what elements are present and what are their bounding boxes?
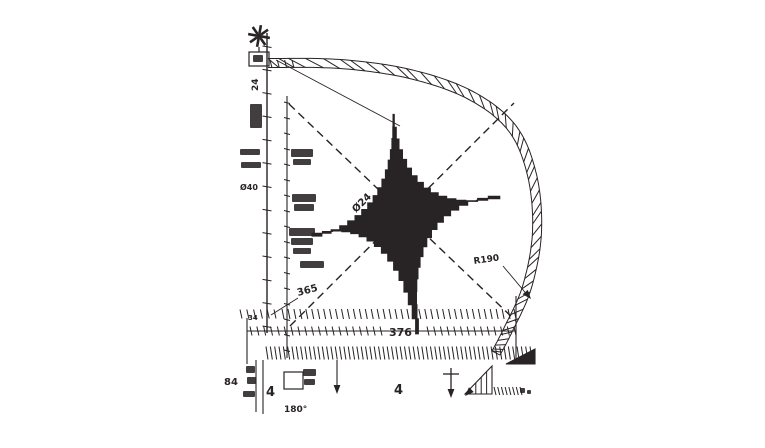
micro-text-blob-2 bbox=[292, 194, 316, 202]
tick-band-c-tick bbox=[469, 347, 471, 360]
tick-band-c-tick bbox=[400, 347, 402, 360]
tick-band-a-tick bbox=[425, 309, 427, 319]
datum-flower-icon bbox=[260, 38, 265, 45]
micro-text-blob-15 bbox=[303, 369, 316, 376]
tick-band-top-tick bbox=[285, 60, 287, 68]
tick-band-a-stub-tick bbox=[274, 310, 276, 319]
datum-flower-icon bbox=[248, 34, 256, 35]
tick-band-a-tick bbox=[496, 309, 498, 319]
hatch-triangle bbox=[465, 366, 492, 394]
annotation-dim-84: 84 bbox=[224, 377, 238, 388]
micro-text-blob-1 bbox=[293, 159, 311, 165]
centerline-ne bbox=[290, 103, 514, 326]
tick-band-c-tick bbox=[331, 347, 333, 360]
annotation-dim-180deg: 180° bbox=[284, 405, 307, 415]
tick-band-c-tick bbox=[379, 347, 381, 360]
tick-band-c-tick bbox=[478, 347, 480, 360]
tick-band-c-tick bbox=[270, 347, 272, 360]
datum-flower-icon bbox=[259, 25, 260, 33]
annotation-dim-34: 34 bbox=[248, 314, 258, 322]
tick-band-a-tick bbox=[460, 309, 462, 319]
tick-band-a-stub-tick bbox=[240, 310, 242, 319]
tick-band-a-tick bbox=[389, 309, 391, 319]
tick-band-c-tick bbox=[279, 347, 281, 360]
tick-band-a-tick bbox=[484, 309, 486, 319]
tick-band-c-tick bbox=[314, 347, 316, 360]
tick-band-c-tick bbox=[283, 347, 285, 360]
arrow-337 bbox=[334, 385, 341, 394]
arc-tick bbox=[517, 131, 520, 145]
tick-band-c-tick bbox=[491, 347, 493, 360]
micro-text-blob-6 bbox=[293, 248, 311, 254]
tick-band-a-tick bbox=[312, 309, 314, 319]
tick-band-c-tick bbox=[366, 347, 368, 360]
micro-text-blob-16 bbox=[304, 379, 315, 385]
annotation-callout-4-mid: 4 bbox=[394, 383, 403, 398]
tick-band-c-tick bbox=[452, 347, 454, 360]
arc-tick bbox=[527, 159, 533, 172]
tick-band-a-tick bbox=[490, 309, 492, 319]
micro-text-blob-5 bbox=[291, 238, 313, 245]
annotation-callout-4-left: 4 bbox=[266, 385, 275, 400]
arc-tick bbox=[524, 148, 529, 161]
tick-band-a-tick bbox=[401, 309, 403, 319]
tick-band-c-tick bbox=[482, 347, 484, 360]
tick-band-micro-tick bbox=[505, 387, 507, 395]
tick-band-c-tick bbox=[322, 347, 324, 360]
tick-band-c-tick bbox=[448, 347, 450, 360]
tick-band-a-tick bbox=[472, 309, 474, 319]
tick-band-c-tick bbox=[474, 347, 476, 360]
arc-tick bbox=[532, 224, 541, 236]
tick-band-c-tick bbox=[465, 347, 467, 360]
mechanical-drawing: 24Ø4036534376Ø24R19084180°44 bbox=[0, 0, 765, 448]
arc-tick bbox=[532, 190, 540, 203]
tick-band-c-tick bbox=[357, 347, 359, 360]
tick-band-micro-tick bbox=[516, 387, 518, 395]
micro-text-blob-12 bbox=[246, 366, 255, 373]
top-leader-line bbox=[276, 60, 400, 126]
tick-band-c-tick bbox=[392, 347, 394, 360]
annotation-dim-376: 376 bbox=[389, 326, 412, 339]
tick-band-a-tick bbox=[365, 309, 367, 319]
tick-band-c-tick bbox=[348, 347, 350, 360]
arc-tick bbox=[520, 138, 524, 152]
tick-band-c-tick bbox=[340, 347, 342, 360]
tick-band-c-tick bbox=[404, 347, 406, 360]
arc-tick bbox=[268, 59, 279, 68]
arc-tick bbox=[528, 166, 534, 179]
tick-band-c-tick bbox=[296, 347, 298, 360]
micro-text-blob-3 bbox=[294, 204, 314, 211]
tick-band-micro-tick bbox=[501, 387, 503, 395]
tick-band-c-tick bbox=[409, 347, 411, 360]
tick-band-a-tick bbox=[502, 309, 504, 319]
tick-band-c-tick bbox=[374, 347, 376, 360]
arc-tick bbox=[505, 114, 506, 128]
tick-band-a-tick bbox=[466, 309, 468, 319]
tick-band-c-tick bbox=[426, 347, 428, 360]
tick-band-a-tick bbox=[282, 309, 284, 319]
tick-band-c-tick bbox=[383, 347, 385, 360]
tick-band-c-tick bbox=[439, 347, 441, 360]
annotation-dim-dia-40: Ø40 bbox=[240, 182, 258, 192]
tick-band-c-tick bbox=[487, 347, 489, 360]
tick-band-c-tick bbox=[396, 347, 398, 360]
tick-band-c-tick bbox=[413, 347, 415, 360]
drawing-stage: 24Ø4036534376Ø24R19084180°44 bbox=[0, 0, 765, 448]
tick-band-c-tick bbox=[443, 347, 445, 360]
datum-flower-icon bbox=[261, 36, 269, 37]
micro-text-blob-8 bbox=[240, 149, 260, 155]
tick-band-c-tick bbox=[309, 347, 311, 360]
tick-band-c-tick bbox=[305, 347, 307, 360]
annotation-dim-left-24: 24 bbox=[251, 78, 261, 91]
tick-band-a-tick bbox=[407, 309, 409, 319]
tick-band-micro-tick bbox=[513, 387, 515, 395]
tick-band-c-tick bbox=[301, 347, 303, 360]
datum-flower-icon-center bbox=[256, 33, 261, 38]
tick-band-c-tick bbox=[353, 347, 355, 360]
micro-text-blob-9 bbox=[241, 162, 261, 168]
arc-tick bbox=[324, 59, 340, 69]
arc-tick bbox=[498, 339, 509, 341]
arc-tick bbox=[306, 58, 324, 67]
tick-band-c-tick bbox=[344, 347, 346, 360]
annotation-dim-r190: R190 bbox=[473, 253, 500, 266]
tick-band-c-tick bbox=[513, 347, 515, 360]
tick-band-c-tick bbox=[504, 347, 506, 360]
arc-tick bbox=[493, 349, 503, 350]
arrow-hatch-tri bbox=[465, 387, 474, 396]
micro-text-blob-13 bbox=[247, 377, 256, 384]
tick-band-a-tick bbox=[330, 309, 332, 319]
tick-band-a-tick bbox=[478, 309, 480, 319]
tick-band-a-tick bbox=[336, 309, 338, 319]
tick-band-c-tick bbox=[318, 347, 320, 360]
annotation-dim-365: 365 bbox=[296, 283, 319, 299]
tick-band-a-tick bbox=[383, 309, 385, 319]
arc-tick bbox=[495, 345, 506, 346]
tick-band-c-tick bbox=[370, 347, 372, 360]
tick-band-a-tick bbox=[431, 309, 433, 319]
tick-band-micro-tick bbox=[509, 387, 511, 395]
tick-band-a-tick bbox=[395, 309, 397, 319]
micro-text-blob-18 bbox=[527, 390, 531, 394]
tick-band-a-tick bbox=[288, 309, 290, 319]
micro-text-blob-14 bbox=[243, 391, 255, 397]
star-profile bbox=[312, 114, 500, 334]
micro-text-blob-10 bbox=[250, 104, 262, 128]
tick-band-c-tick bbox=[417, 347, 419, 360]
tick-band-c-tick bbox=[456, 347, 458, 360]
tick-band-c-tick bbox=[335, 347, 337, 360]
arc-tick bbox=[531, 178, 538, 191]
micro-text-blob-17 bbox=[520, 388, 525, 393]
tick-band-c-tick bbox=[266, 347, 268, 360]
tick-band-c-tick bbox=[361, 347, 363, 360]
tick-band-a-tick bbox=[324, 309, 326, 319]
micro-text-blob-0 bbox=[291, 149, 313, 157]
tick-band-c-tick bbox=[292, 347, 294, 360]
arrow-leader-t bbox=[448, 389, 455, 398]
tick-band-c-tick bbox=[430, 347, 432, 360]
callout-box-left bbox=[284, 372, 303, 389]
tick-band-a-tick bbox=[437, 309, 439, 319]
tick-band-micro-tick bbox=[494, 387, 496, 395]
tick-band-c-tick bbox=[327, 347, 329, 360]
tick-band-a-tick bbox=[306, 309, 308, 319]
tick-band-a-tick bbox=[341, 309, 343, 319]
micro-text-blob-7 bbox=[300, 261, 324, 268]
tick-band-a-tick bbox=[294, 309, 296, 319]
centerline-se bbox=[289, 104, 516, 321]
tick-band-a-tick bbox=[443, 309, 445, 319]
datum-flower-icon bbox=[253, 27, 258, 34]
tick-band-a-tick bbox=[359, 309, 361, 319]
tick-band-c-tick bbox=[422, 347, 424, 360]
tick-band-a-stub-tick bbox=[260, 310, 262, 319]
micro-text-blob-11 bbox=[253, 55, 263, 62]
micro-text-blob-4 bbox=[289, 228, 315, 236]
tick-band-a-tick bbox=[347, 309, 349, 319]
tick-band-c-tick bbox=[275, 347, 277, 360]
tick-band-c-tick bbox=[461, 347, 463, 360]
tick-band-c-tick bbox=[288, 347, 290, 360]
tick-band-micro-tick bbox=[498, 387, 500, 395]
tick-band-c-tick bbox=[508, 347, 510, 360]
tick-band-c-tick bbox=[387, 347, 389, 360]
arc-tick bbox=[512, 122, 513, 136]
tick-band-a-tick bbox=[419, 309, 421, 319]
datum-flower-icon bbox=[250, 37, 257, 42]
tick-band-a-tick bbox=[318, 309, 320, 319]
tick-band-c-tick bbox=[435, 347, 437, 360]
tick-band-a-tick bbox=[449, 309, 451, 319]
tick-band-a-tick bbox=[353, 309, 355, 319]
datum-flower-icon bbox=[257, 38, 258, 46]
tick-band-a-tick bbox=[377, 309, 379, 319]
tick-band-a-tick bbox=[455, 309, 457, 319]
tick-band-a-tick bbox=[371, 309, 373, 319]
